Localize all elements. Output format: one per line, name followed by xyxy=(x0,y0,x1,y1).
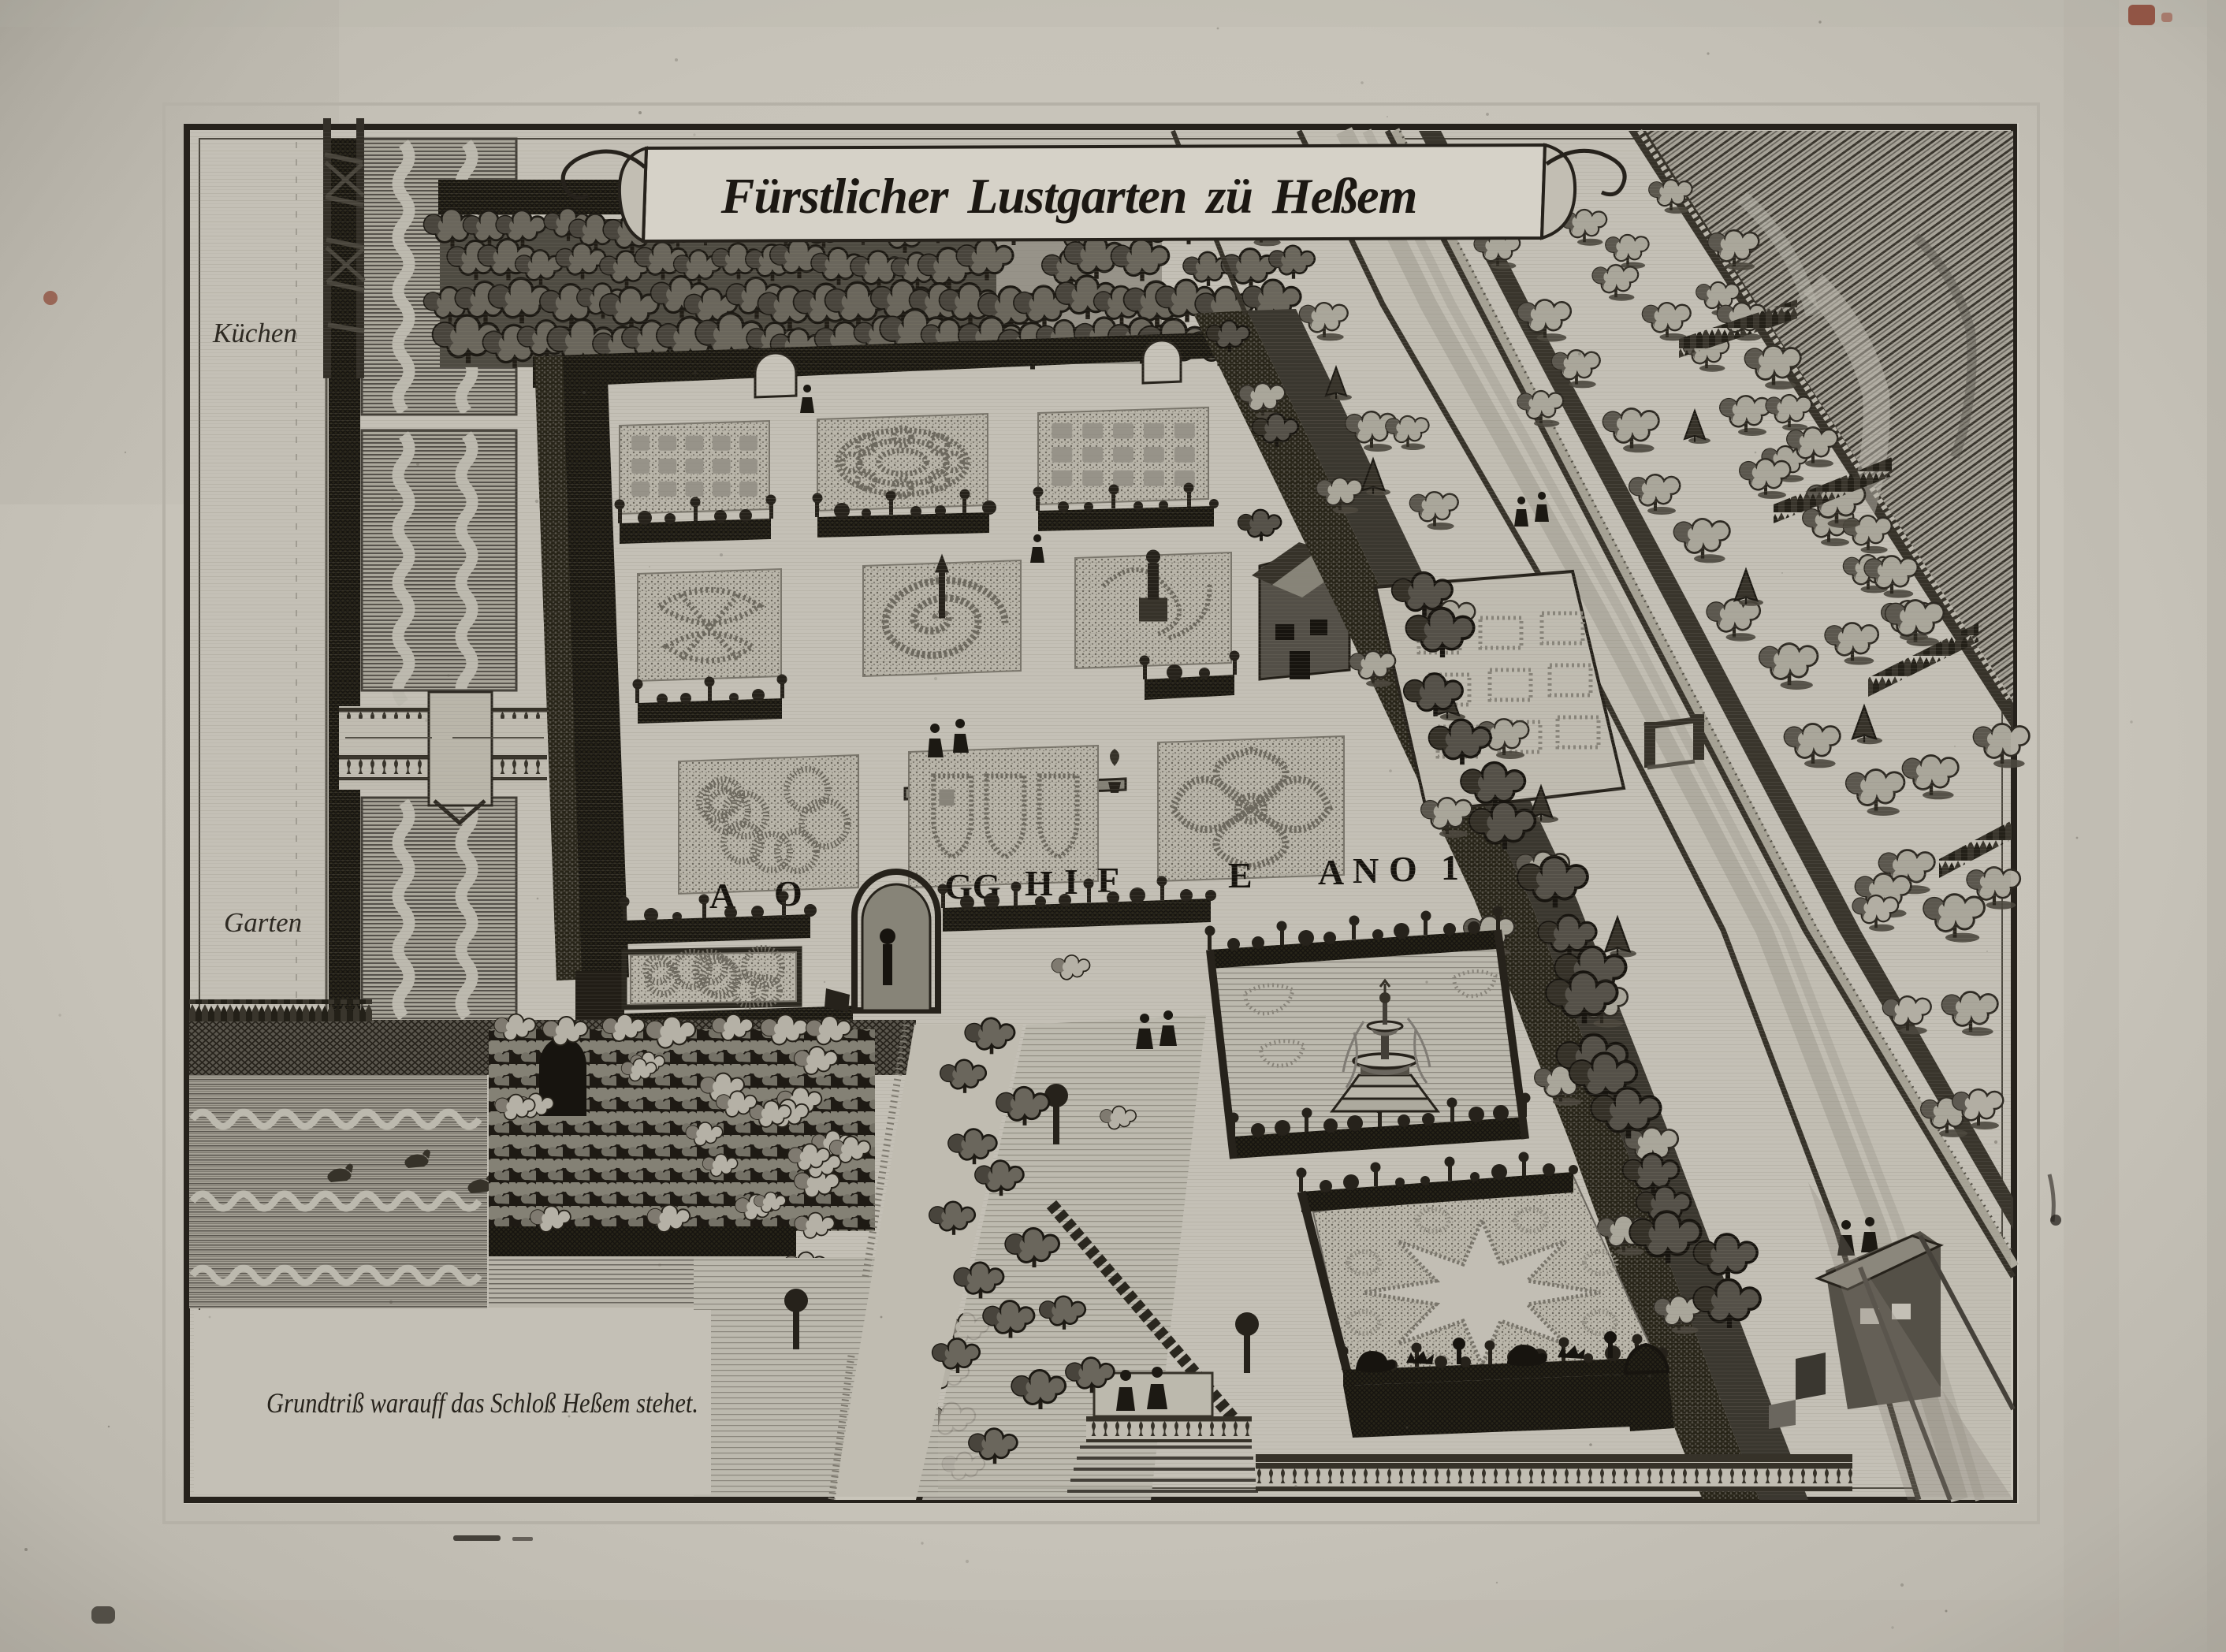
svg-text:Küchen: Küchen xyxy=(212,318,297,348)
svg-text:Garten: Garten xyxy=(224,907,302,938)
svg-text:Fürstlicher Lustgarten zü Heße: Fürstlicher Lustgarten zü Heßem xyxy=(720,168,1417,224)
